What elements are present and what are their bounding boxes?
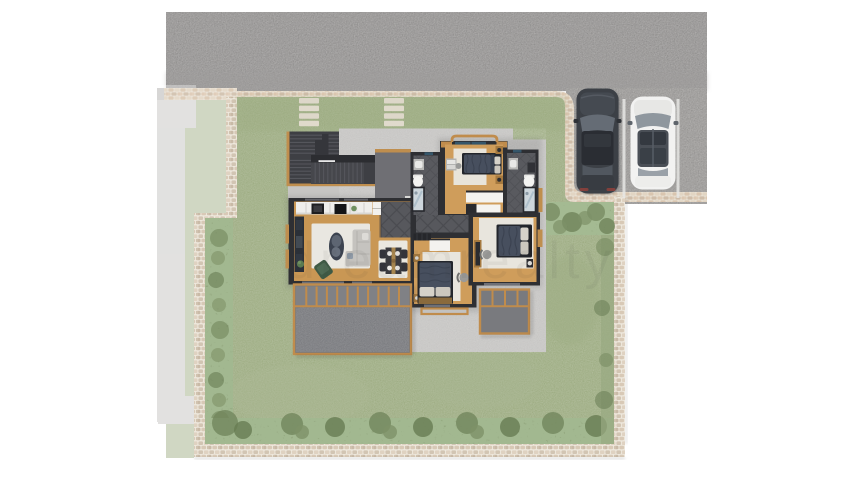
svg-text:dreamrealty: dreamrealty: [286, 232, 616, 290]
